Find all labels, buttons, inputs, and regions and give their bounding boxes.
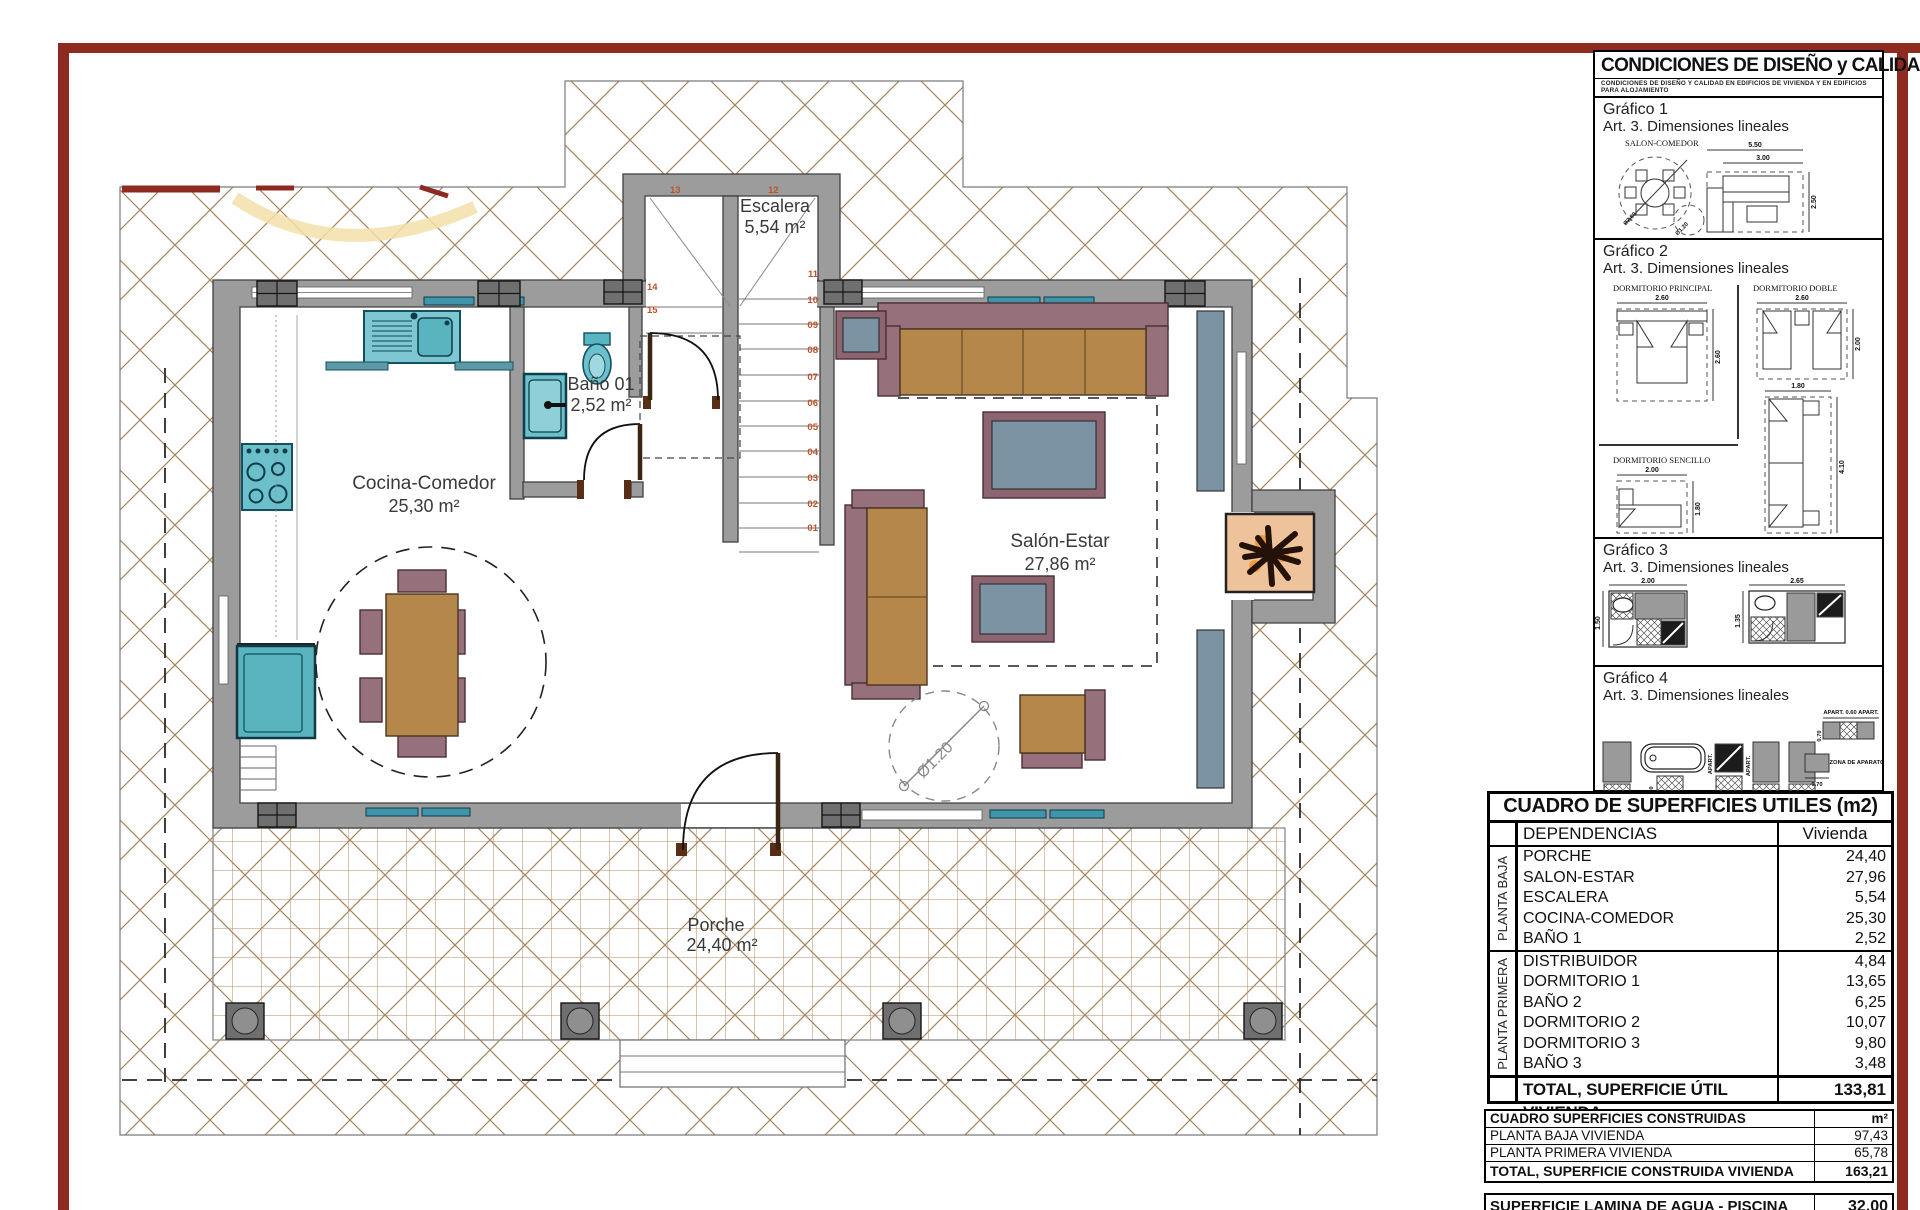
pool-area-row: SUPERFICIE LAMINA DE AGUA - PISCINA 32,0… [1484,1193,1894,1210]
label-cocina-area: 25,30 m² [388,496,459,516]
col-dependencias: DEPENDENCIAS [1490,823,1779,845]
stair-num: 09 [807,320,818,331]
g2-dim: 2.00 [1855,337,1862,351]
group-planta-baja-rows: PORCHE24,40 SALON-ESTAR27,96 ESCALERA5,5… [1490,847,1891,950]
grafico-2-label: Gráfico 2 [1603,243,1882,261]
loveseat [845,490,927,699]
g4-dim: 0.70 [1811,782,1822,788]
label-escalera: Escalera [740,196,811,216]
panel-title: CONDICIONES DE DISEÑO y CALIDAD (DC-09) [1595,52,1882,78]
stair-num: 02 [807,499,818,510]
partition-kitchen-bath [510,307,524,499]
g3-dim: 2.00 [1641,578,1655,585]
sofa-large [878,303,1168,396]
table-row: BAÑO 33,48 [1490,1054,1891,1075]
counter-strip-1 [326,362,388,370]
label-escalera-area: 5,54 m² [744,217,805,237]
stair-num: 01 [807,523,818,534]
table-row: DORMITORIO 113,65 [1490,972,1891,993]
panel-subtitle: CONDICIONES DE DISEÑO Y CALIDAD EN EDIFI… [1595,78,1882,98]
stair-num: 06 [807,398,818,409]
corner-table [836,311,886,359]
table-row: BAÑO 12,52 [1490,929,1891,950]
built-total-row: TOTAL, SUPERFICIE CONSTRUIDA VIVIENDA 16… [1486,1162,1892,1181]
table-row: ESCALERA5,54 [1490,888,1891,909]
g4-apart: APART. [1708,753,1714,774]
useful-areas-table: CUADRO DE SUPERFICIES UTILES (m2) DEPEND… [1487,791,1894,1104]
porch-tiles [213,828,1285,1040]
g2-cap-principal: DORMITORIO PRINCIPAL [1613,283,1712,293]
shower-tray [524,374,566,438]
stair-num: 15 [647,305,658,316]
entry-opening [681,804,780,827]
table-row: DISTRIBUIDOR4,84 [1490,952,1891,973]
useful-total-row: TOTAL, SUPERFICIE ÚTIL VIVIENDA 133,81 [1490,1075,1891,1101]
grafico-1-figure: SALON-COMEDOR Ø2.80 Ø1.20 5.50 3.00 [1595,136,1882,238]
stair-num: 08 [807,345,818,356]
table-row: PLANTA BAJA VIVIENDA 97,43 [1486,1128,1892,1145]
grafico-4-sub: Art. 3. Dimensiones lineales [1603,688,1882,705]
stair-num: 04 [807,447,818,458]
g2-cap-sencillo: DORMITORIO SENCILLO [1613,455,1710,465]
grafico-2-sub: Art. 3. Dimensiones lineales [1603,261,1882,278]
table-row: BAÑO 26,25 [1490,993,1891,1014]
label-porche: Porche [687,915,744,935]
dc09-panel: CONDICIONES DE DISEÑO y CALIDAD (DC-09) … [1593,50,1884,792]
g2-dim: 2.60 [1715,350,1722,364]
g2-dim: 1.80 [1791,383,1805,390]
g4-apart: APART. [1746,755,1752,776]
stair-divider [723,196,738,542]
group-planta-primera-rows: DISTRIBUIDOR4,84 DORMITORIO 113,65 BAÑO … [1490,950,1891,1075]
g4-dim: 0.70 [1817,730,1823,741]
col-vivienda: Vivienda [1779,823,1891,845]
built-table-header: CUADRO SUPERFICIES CONSTRUIDAS m² [1486,1111,1892,1128]
g3-dim: 2.65 [1790,578,1804,585]
drawing-sheet: 01 02 03 04 05 06 07 08 09 10 11 12 13 1… [0,0,1920,1210]
gutter-divider [1515,823,1518,1101]
table-row: PLANTA PRIMERA VIVIENDA 65,78 [1486,1145,1892,1162]
coffee-table [983,412,1105,498]
stair-num: 07 [807,372,818,383]
partition-under-bath-a [523,482,581,497]
g1-dim-iw: 3.00 [1756,155,1770,162]
stair-num: 12 [768,185,779,196]
table-row: SALON-ESTAR27,96 [1490,868,1891,889]
label-salon-area: 27,86 m² [1024,554,1095,574]
stair-num: 03 [807,473,818,484]
table-row: DORMITORIO 39,80 [1490,1034,1891,1055]
grafico-3-sub: Art. 3. Dimensiones lineales [1603,560,1882,577]
stair-num: 05 [807,422,818,433]
grafico-1-label: Gráfico 1 [1603,101,1882,119]
useful-table-title: CUADRO DE SUPERFICIES UTILES (m2) [1490,794,1891,823]
stove [242,444,292,510]
sideboard-upper [1197,311,1224,491]
grafico-1-section: Gráfico 1 Art. 3. Dimensiones lineales S… [1595,101,1882,240]
g1-dim-diag2: Ø1.20 [1675,222,1690,238]
stair-num: 10 [807,295,818,306]
grafico-1-sub: Art. 3. Dimensiones lineales [1603,119,1882,136]
sideboard-lower [1197,630,1224,788]
grafico-3-label: Gráfico 3 [1603,542,1882,560]
g4-apart-row: APART. 0.60 APART. [1823,710,1879,716]
label-bano-area: 2,52 m² [570,395,631,415]
g2-dim: 4.10 [1839,460,1846,474]
grafico-3-section: Gráfico 3 Art. 3. Dimensiones lineales 2… [1595,542,1882,667]
g3-dim: 1.50 [1595,616,1602,630]
group-label-planta-primera: PLANTA PRIMERA [1490,951,1515,1077]
g2-dim: 1.80 [1695,502,1702,516]
label-porche-area: 24,40 m² [686,935,757,955]
armchair [1020,690,1105,768]
label-bano: Baño 01 [567,374,634,394]
g2-dim: 2.00 [1645,467,1659,474]
stair-right-wall [820,307,834,545]
counter-strip-2 [455,362,513,370]
grafico-3-figure: 2.00 1.50 2.65 1.35 [1595,577,1882,665]
label-cocina: Cocina-Comedor [352,473,496,494]
g2-dim: 2.60 [1795,295,1809,302]
fireplace [1226,514,1314,592]
label-salon: Salón-Estar [1010,531,1110,552]
stair-num: 11 [808,269,819,280]
table-row: PORCHE24,40 [1490,847,1891,868]
stair-num: 13 [670,185,681,196]
useful-table-header: DEPENDENCIAS Vivienda [1490,823,1891,847]
g1-dim-diag: Ø2.80 [1623,212,1638,228]
g1-dim-w: 5.50 [1748,142,1762,149]
grafico-2-section: Gráfico 2 Art. 3. Dimensiones lineales D… [1595,243,1882,538]
grafico-2-figure: DORMITORIO PRINCIPAL 2.60 2.60 DORMITORI… [1595,279,1882,537]
porch-steps [620,1040,845,1087]
partition-under-bath-b [631,482,643,497]
grafico-1-caption: SALON-COMEDOR [1625,138,1699,148]
fridge [237,643,315,738]
g4-legend-aparato: ZONA DE APARATO [1830,760,1882,766]
kitchen-sink-unit [364,311,460,363]
group-label-planta-baja: PLANTA BAJA [1490,848,1515,951]
built-areas-table: CUADRO SUPERFICIES CONSTRUIDAS m² PLANTA… [1484,1109,1894,1210]
g1-dim-h: 2.50 [1811,195,1818,209]
table-row: DORMITORIO 210,07 [1490,1013,1891,1034]
grafico-4-label: Gráfico 4 [1603,670,1882,688]
table-row: COCINA-COMEDOR25,30 [1490,909,1891,930]
g2-cap-doble: DORMITORIO DOBLE [1753,283,1838,293]
side-table [972,576,1054,642]
value-column-divider [1777,823,1780,1101]
g3-dim: 1.35 [1735,614,1742,628]
stair-num: 14 [647,282,658,293]
g2-dim: 2.60 [1655,295,1669,302]
